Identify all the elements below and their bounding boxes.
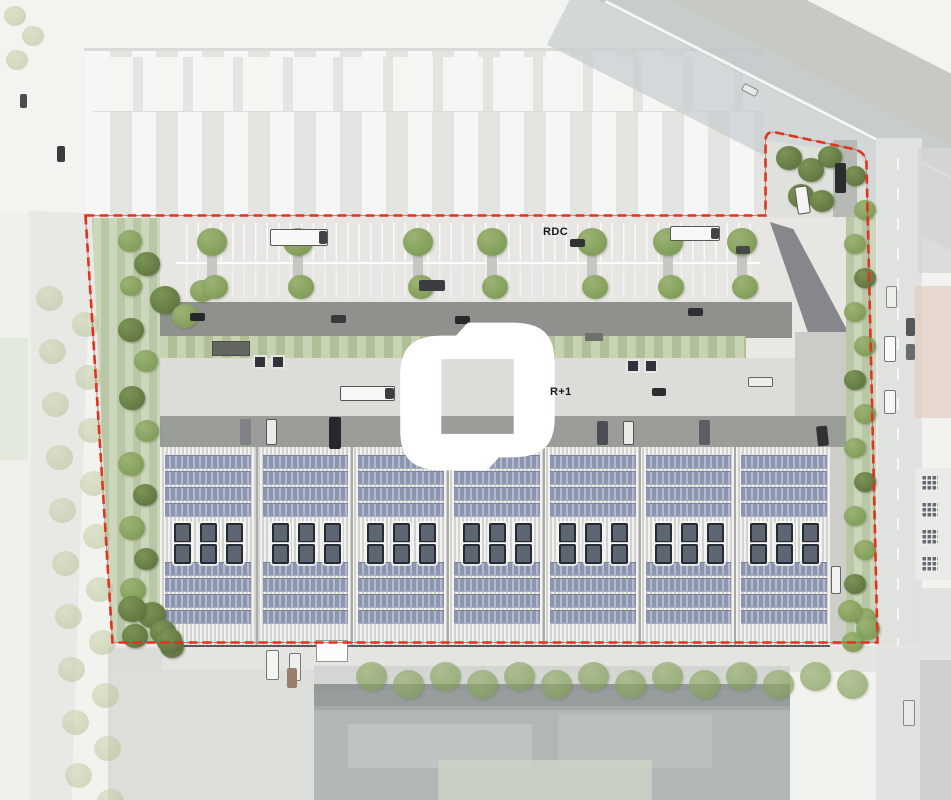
car-icon bbox=[57, 146, 65, 162]
parking-tree-icon bbox=[403, 228, 433, 256]
solar-panel-row bbox=[454, 594, 540, 608]
site-plan-canvas: RDC R+1 bbox=[0, 0, 951, 800]
landscape-tree-icon bbox=[156, 628, 182, 652]
roof-skylight bbox=[585, 523, 602, 543]
roof-skylight bbox=[226, 523, 243, 543]
roof-skylight bbox=[367, 523, 384, 543]
solar-panel-row bbox=[646, 562, 732, 576]
aerial-right-building-salmon bbox=[915, 286, 951, 418]
truck-cab-icon bbox=[385, 388, 394, 399]
parking-tree-icon bbox=[732, 275, 758, 299]
landscape-tree-icon bbox=[844, 234, 866, 254]
landscape-tree-icon bbox=[842, 632, 864, 652]
roof-bay bbox=[734, 447, 830, 645]
solar-panel-row bbox=[741, 578, 827, 592]
roof-bay bbox=[160, 447, 256, 645]
solar-panel-row bbox=[358, 487, 444, 501]
roof-skylight bbox=[272, 523, 289, 543]
site-access-road-right bbox=[795, 332, 848, 420]
roof-bay bbox=[639, 447, 735, 645]
truck-icon bbox=[884, 336, 896, 362]
parking-tree-icon bbox=[202, 275, 228, 299]
aerial-left-green-patch bbox=[0, 338, 28, 460]
docked-trailer-icon bbox=[240, 419, 251, 445]
aerial-grid-roof-unit bbox=[921, 476, 938, 491]
hedge-tree-icon bbox=[615, 670, 646, 699]
street-tree-icon bbox=[92, 683, 119, 708]
hedge-tree-icon bbox=[393, 670, 424, 699]
landscape-tree-icon bbox=[854, 404, 876, 424]
parking-tree-icon bbox=[658, 275, 684, 299]
solar-panel-row bbox=[454, 487, 540, 501]
upper-floor-label: R+1 bbox=[550, 386, 572, 398]
car-icon bbox=[331, 315, 346, 323]
docked-trailer-icon bbox=[623, 421, 634, 445]
hedge-tree-icon bbox=[763, 670, 794, 699]
solar-panel-row bbox=[358, 503, 444, 517]
aerial-right-building-1 bbox=[918, 148, 951, 273]
solar-panel-row bbox=[165, 487, 251, 501]
parking-tree-icon bbox=[288, 275, 314, 299]
landscape-tree-icon bbox=[134, 252, 160, 276]
site-roof-unit-2 bbox=[585, 333, 603, 341]
solar-panel-row bbox=[263, 487, 349, 501]
landscape-tree-icon bbox=[844, 302, 866, 322]
solar-panel-row bbox=[165, 471, 251, 485]
landscape-tree-icon bbox=[118, 452, 144, 476]
roof-bay bbox=[256, 447, 352, 645]
truck-cab-icon bbox=[711, 228, 719, 239]
hedge-tree-icon bbox=[504, 662, 535, 691]
roof-skylight bbox=[226, 544, 243, 564]
roof-skylight bbox=[393, 523, 410, 543]
aerial-bottom-left-lot bbox=[112, 670, 314, 800]
street-tree-icon bbox=[36, 286, 63, 311]
solar-panel-row bbox=[358, 578, 444, 592]
landscape-tree-icon bbox=[119, 386, 145, 410]
roof-bay bbox=[351, 447, 447, 645]
solar-panel-row bbox=[646, 594, 732, 608]
solar-panel-row bbox=[263, 578, 349, 592]
site-roof-unit-1 bbox=[212, 341, 250, 356]
car-icon bbox=[906, 318, 915, 336]
hedge-tree-icon bbox=[430, 662, 461, 691]
solar-panel-row bbox=[741, 471, 827, 485]
parking-tree-icon bbox=[482, 275, 508, 299]
solar-panel-row bbox=[741, 503, 827, 517]
car-icon bbox=[570, 239, 585, 247]
watermark-loop-logo-icon bbox=[397, 321, 558, 472]
roof-skylight bbox=[200, 544, 217, 564]
solar-panel-row bbox=[263, 455, 349, 469]
roof-skylight bbox=[489, 544, 506, 564]
solar-panel-row bbox=[550, 487, 636, 501]
solar-panel-row bbox=[358, 562, 444, 576]
solar-panel-row bbox=[165, 455, 251, 469]
aerial-grid-roof-unit bbox=[921, 503, 938, 518]
docked-trailer-icon bbox=[699, 420, 710, 445]
hedge-tree-icon bbox=[800, 662, 831, 691]
solar-panel-row bbox=[741, 455, 827, 469]
car-icon bbox=[190, 313, 205, 321]
solar-panel-row bbox=[263, 610, 349, 624]
roof-skylight bbox=[802, 544, 819, 564]
roof-skylight bbox=[611, 523, 628, 543]
street-tree-icon bbox=[49, 498, 76, 523]
roof-skylight bbox=[298, 544, 315, 564]
solar-panel-row bbox=[550, 471, 636, 485]
solar-panel-row bbox=[550, 562, 636, 576]
street-tree-icon bbox=[52, 551, 79, 576]
aerial-grid-roof-unit bbox=[921, 530, 938, 545]
solar-panel-row bbox=[550, 594, 636, 608]
solar-panel-row bbox=[454, 503, 540, 517]
solar-panel-row bbox=[646, 578, 732, 592]
landscape-tree-icon bbox=[844, 506, 866, 526]
landscape-tree-icon bbox=[854, 472, 876, 492]
hedge-tree-icon bbox=[689, 670, 720, 699]
hedge-tree-icon bbox=[356, 662, 387, 691]
solar-panel-row bbox=[165, 594, 251, 608]
solar-panel-row bbox=[646, 487, 732, 501]
street-tree-icon bbox=[72, 312, 99, 337]
roof-skylight bbox=[515, 523, 532, 543]
roof-skylight bbox=[200, 523, 217, 543]
container-icon bbox=[287, 668, 297, 688]
car-icon bbox=[688, 308, 703, 316]
landscape-tree-icon bbox=[854, 540, 876, 560]
solar-panel-row bbox=[454, 578, 540, 592]
roof-skylight bbox=[463, 544, 480, 564]
roof-skylight bbox=[750, 544, 767, 564]
landscape-tree-icon bbox=[122, 624, 148, 648]
street-tree-icon bbox=[22, 26, 44, 46]
landscape-tree-icon bbox=[844, 370, 866, 390]
solar-panel-row bbox=[646, 455, 732, 469]
solar-panel-row bbox=[646, 610, 732, 624]
roof-skylight bbox=[776, 523, 793, 543]
solar-panel-row bbox=[263, 471, 349, 485]
hedge-tree-icon bbox=[652, 662, 683, 691]
van-icon bbox=[903, 700, 915, 726]
landscape-tree-icon bbox=[118, 596, 146, 622]
roof-skylight bbox=[419, 544, 436, 564]
landscape-tree-icon bbox=[854, 336, 876, 356]
van-icon bbox=[748, 377, 773, 387]
landscape-tree-icon bbox=[844, 438, 866, 458]
solar-panel-row bbox=[741, 562, 827, 576]
roof-bay bbox=[447, 447, 543, 645]
van-icon bbox=[831, 566, 841, 594]
roof-skylight bbox=[611, 544, 628, 564]
docked-trailer-icon bbox=[266, 419, 277, 445]
solar-panel-row bbox=[165, 562, 251, 576]
landscape-tree-icon bbox=[854, 200, 876, 220]
solar-panel-row bbox=[263, 503, 349, 517]
solar-panel-row bbox=[358, 594, 444, 608]
roof-skylight bbox=[272, 544, 289, 564]
street-tree-icon bbox=[55, 604, 82, 629]
roof-vent-icon bbox=[646, 361, 656, 371]
solar-panel-row bbox=[550, 610, 636, 624]
roof-skylight bbox=[367, 544, 384, 564]
roof-skylight bbox=[585, 544, 602, 564]
aerial-bottom-grass bbox=[438, 760, 652, 800]
parking-tree-icon bbox=[582, 275, 608, 299]
street-tree-icon bbox=[65, 763, 92, 788]
solar-panel-row bbox=[646, 471, 732, 485]
landscape-tree-icon bbox=[120, 276, 142, 296]
roof-skylight bbox=[489, 523, 506, 543]
solar-panel-row bbox=[454, 471, 540, 485]
street-tree-icon bbox=[62, 710, 89, 735]
roof-skylight bbox=[298, 523, 315, 543]
roof-vent-icon bbox=[628, 361, 638, 371]
roof-skylight bbox=[707, 523, 724, 543]
solar-panel-row bbox=[454, 562, 540, 576]
truck-icon bbox=[835, 163, 846, 193]
van-icon bbox=[419, 280, 445, 291]
roof-skylight bbox=[559, 523, 576, 543]
aerial-left-margin bbox=[0, 215, 30, 800]
hedge-tree-icon bbox=[726, 662, 757, 691]
hedge-tree-icon bbox=[467, 670, 498, 699]
solar-panel-row bbox=[550, 455, 636, 469]
car-icon bbox=[816, 425, 829, 446]
solar-panel-row bbox=[263, 594, 349, 608]
solar-panel-row bbox=[646, 503, 732, 517]
solar-panel-row bbox=[358, 471, 444, 485]
solar-panel-row bbox=[741, 594, 827, 608]
truck-cab-icon bbox=[319, 231, 327, 244]
solar-panel-row bbox=[454, 610, 540, 624]
roof-skylight bbox=[681, 544, 698, 564]
truck-icon bbox=[266, 650, 279, 680]
landscape-tree-icon bbox=[844, 574, 866, 594]
landscape-tree-icon bbox=[119, 516, 145, 540]
car-icon bbox=[736, 246, 750, 254]
aerial-grid-roof-unit bbox=[921, 557, 938, 572]
car-icon bbox=[652, 388, 666, 396]
landscape-tree-icon bbox=[854, 268, 876, 288]
car-icon bbox=[906, 344, 915, 360]
street-tree-icon bbox=[6, 50, 28, 70]
van-icon bbox=[886, 286, 897, 308]
parking-tree-icon bbox=[197, 228, 227, 256]
roof-skylight bbox=[750, 523, 767, 543]
roof-skylight bbox=[393, 544, 410, 564]
street-tree-icon bbox=[89, 630, 116, 655]
landscape-tree-icon bbox=[133, 484, 157, 506]
ground-floor-label: RDC bbox=[543, 226, 568, 238]
landscape-tree-icon bbox=[838, 600, 862, 622]
aerial-right-building-low bbox=[913, 588, 951, 650]
hedge-tree-icon bbox=[578, 662, 609, 691]
roof-bay bbox=[543, 447, 639, 645]
solar-panel-row bbox=[741, 610, 827, 624]
street-tree-icon bbox=[78, 418, 105, 443]
solar-panel-row bbox=[165, 578, 251, 592]
truck-icon bbox=[884, 390, 896, 414]
street-tree-icon bbox=[75, 365, 102, 390]
roof-vent-icon bbox=[273, 357, 283, 367]
roof-skylight bbox=[655, 544, 672, 564]
street-tree-icon bbox=[39, 339, 66, 364]
hedge-tree-icon bbox=[541, 670, 572, 699]
roof-skylight bbox=[559, 544, 576, 564]
solar-panel-row bbox=[550, 503, 636, 517]
solar-panel-row bbox=[165, 503, 251, 517]
car-icon bbox=[20, 94, 27, 108]
roof-skylight bbox=[174, 523, 191, 543]
parking-tree-icon bbox=[477, 228, 507, 256]
roof-skylight bbox=[419, 523, 436, 543]
docked-trailer-icon bbox=[597, 421, 608, 445]
street-tree-icon bbox=[86, 577, 113, 602]
solar-panel-row bbox=[358, 610, 444, 624]
solar-panel-row bbox=[263, 562, 349, 576]
landscape-tree-icon bbox=[134, 350, 158, 372]
roof-skylight bbox=[324, 544, 341, 564]
roof-skylight bbox=[174, 544, 191, 564]
landscape-tree-icon bbox=[844, 166, 866, 186]
roof-skylight bbox=[776, 544, 793, 564]
landscape-tree-icon bbox=[118, 318, 144, 342]
landscape-tree-icon bbox=[135, 420, 159, 442]
roof-skylight bbox=[655, 523, 672, 543]
landscape-tree-icon bbox=[118, 230, 142, 252]
docked-trailer-icon bbox=[329, 417, 341, 449]
roof-vent-icon bbox=[255, 357, 265, 367]
roof-skylight bbox=[324, 523, 341, 543]
solar-panel-row bbox=[550, 578, 636, 592]
solar-panel-row bbox=[165, 610, 251, 624]
solar-panel-row bbox=[741, 487, 827, 501]
roof-skylight bbox=[707, 544, 724, 564]
landscape-tree-icon bbox=[810, 190, 834, 212]
aerial-bottom-right-building bbox=[920, 660, 951, 800]
street-tree-icon bbox=[83, 524, 110, 549]
roof-skylight bbox=[463, 523, 480, 543]
roof-skylight bbox=[802, 523, 819, 543]
street-tree-icon bbox=[4, 6, 26, 26]
landscape-tree-icon bbox=[134, 548, 158, 570]
roof-skylight bbox=[515, 544, 532, 564]
roof-skylight bbox=[681, 523, 698, 543]
street-tree-icon bbox=[46, 445, 73, 470]
hedge-tree-icon bbox=[837, 670, 868, 699]
